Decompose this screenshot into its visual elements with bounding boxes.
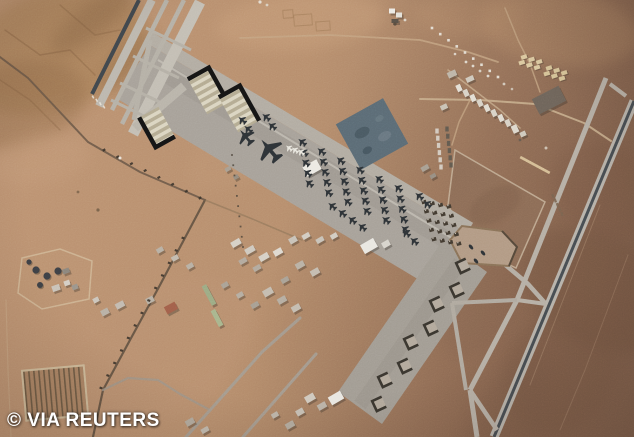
noise-overlay [0, 0, 634, 437]
credit-watermark: © VIA REUTERS [7, 410, 160, 432]
satellite-image: © VIA REUTERS [0, 0, 634, 437]
airbase-scene [0, 0, 634, 437]
